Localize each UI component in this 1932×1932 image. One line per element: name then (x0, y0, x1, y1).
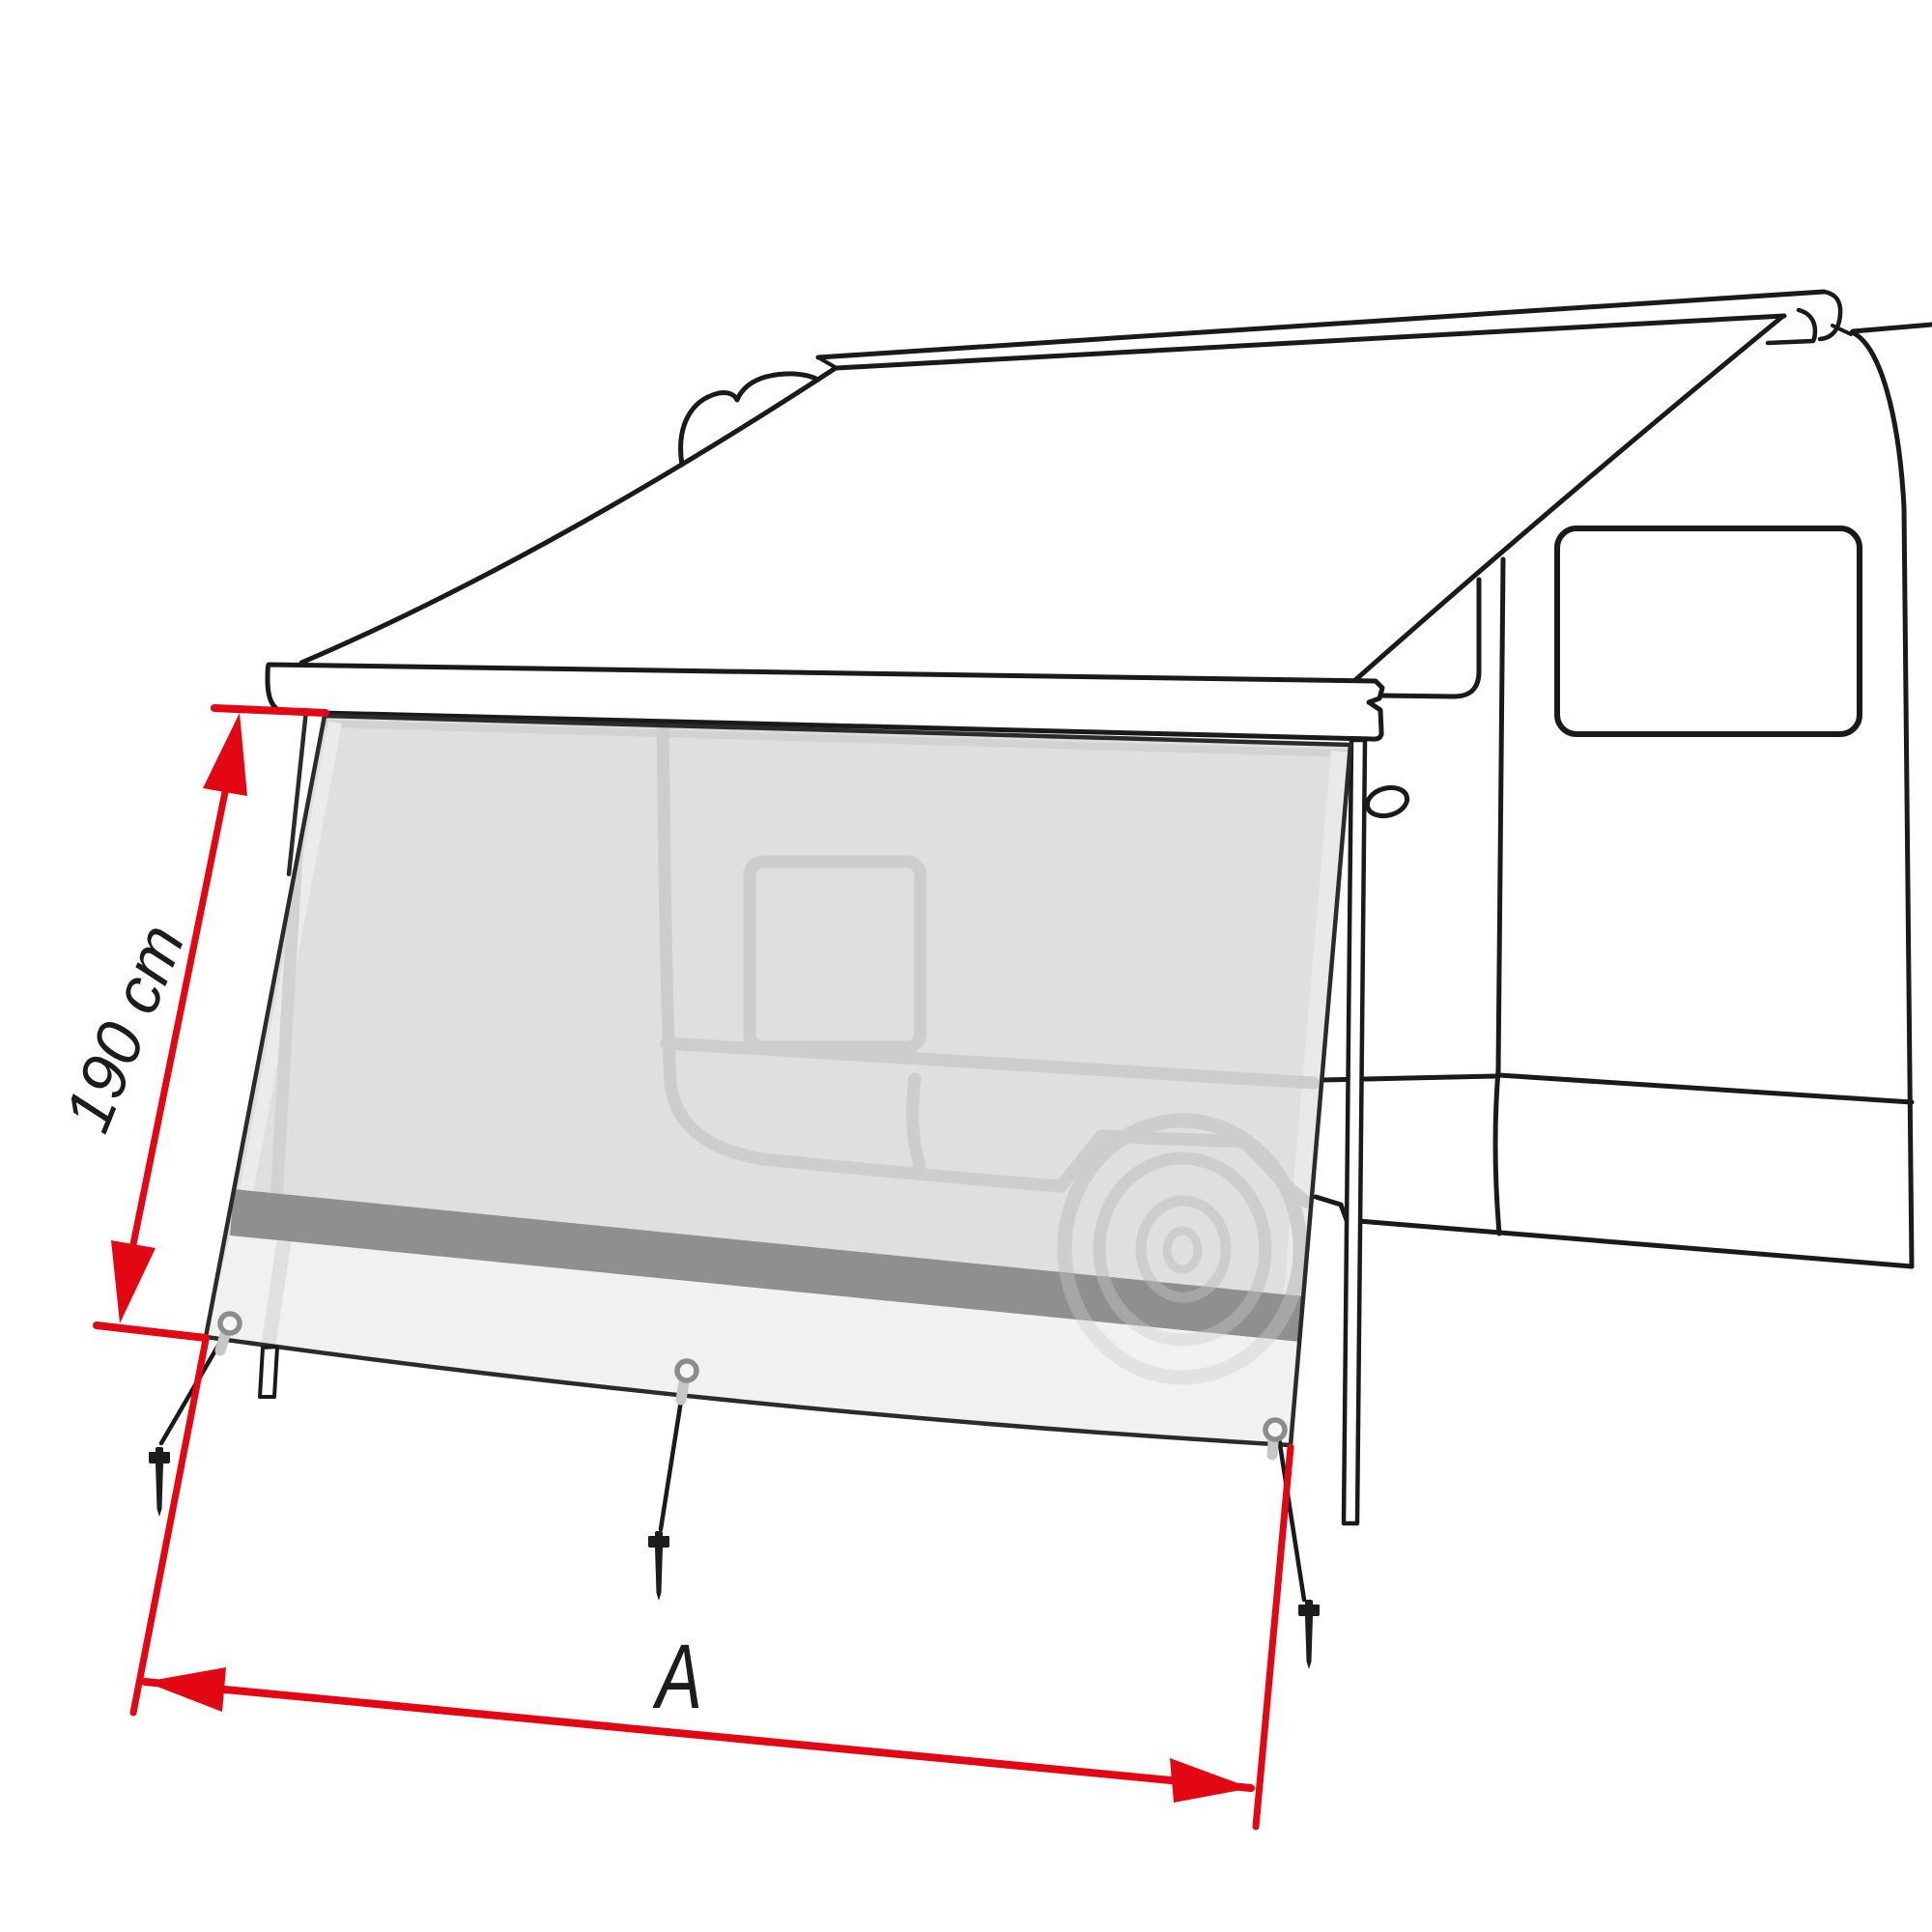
svg-text:A: A (652, 1626, 702, 1728)
